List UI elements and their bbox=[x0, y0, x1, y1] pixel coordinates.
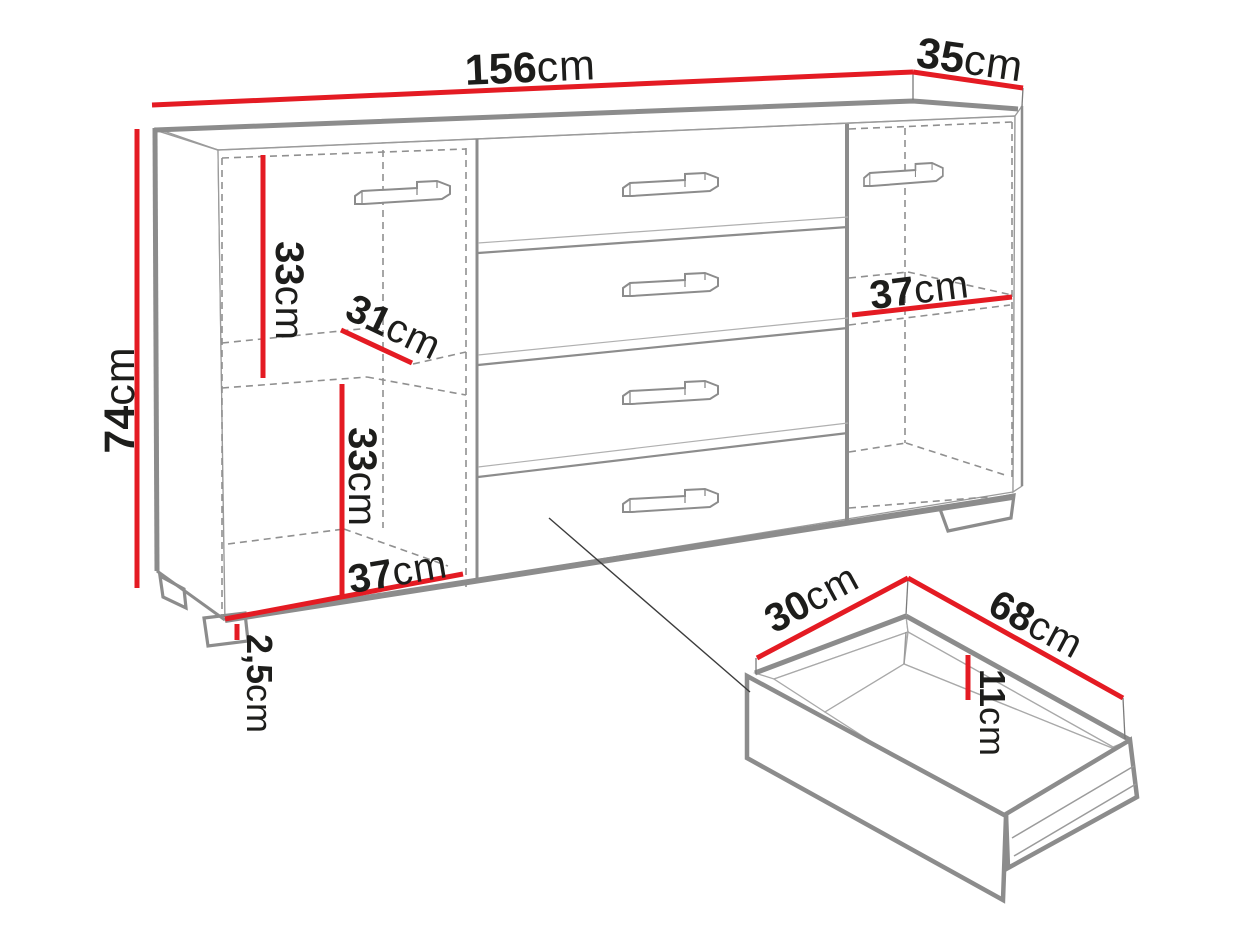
dim-label-drawer-width: 68cm bbox=[982, 582, 1091, 668]
sideboard-drawing bbox=[152, 72, 1023, 646]
right-side-sliver bbox=[1013, 106, 1022, 492]
dim-label-drawer-height: 11cm bbox=[972, 669, 1013, 757]
left-side-panel bbox=[155, 128, 225, 620]
dim-label-left-lower-height: 33cm bbox=[340, 427, 384, 527]
drawer-drawing bbox=[747, 616, 1137, 900]
left-outer-edge bbox=[155, 128, 157, 571]
diagram-canvas: 156cm 35cm 74cm 33cm 31cm 33cm 37cm 2,5c… bbox=[0, 0, 1256, 942]
furniture-dimension-diagram: 156cm 35cm 74cm 33cm 31cm 33cm 37cm 2,5c… bbox=[0, 0, 1256, 942]
front-face bbox=[218, 116, 1015, 620]
dim-label-overall-height: 74cm bbox=[96, 346, 144, 453]
dim-label-overall-width: 156cm bbox=[464, 41, 597, 95]
extension-tick bbox=[1123, 698, 1125, 739]
dim-label-left-upper-height: 33cm bbox=[267, 241, 311, 341]
dim-label-plinth-height: 2,5cm bbox=[239, 634, 280, 734]
extension-tick bbox=[906, 578, 908, 615]
